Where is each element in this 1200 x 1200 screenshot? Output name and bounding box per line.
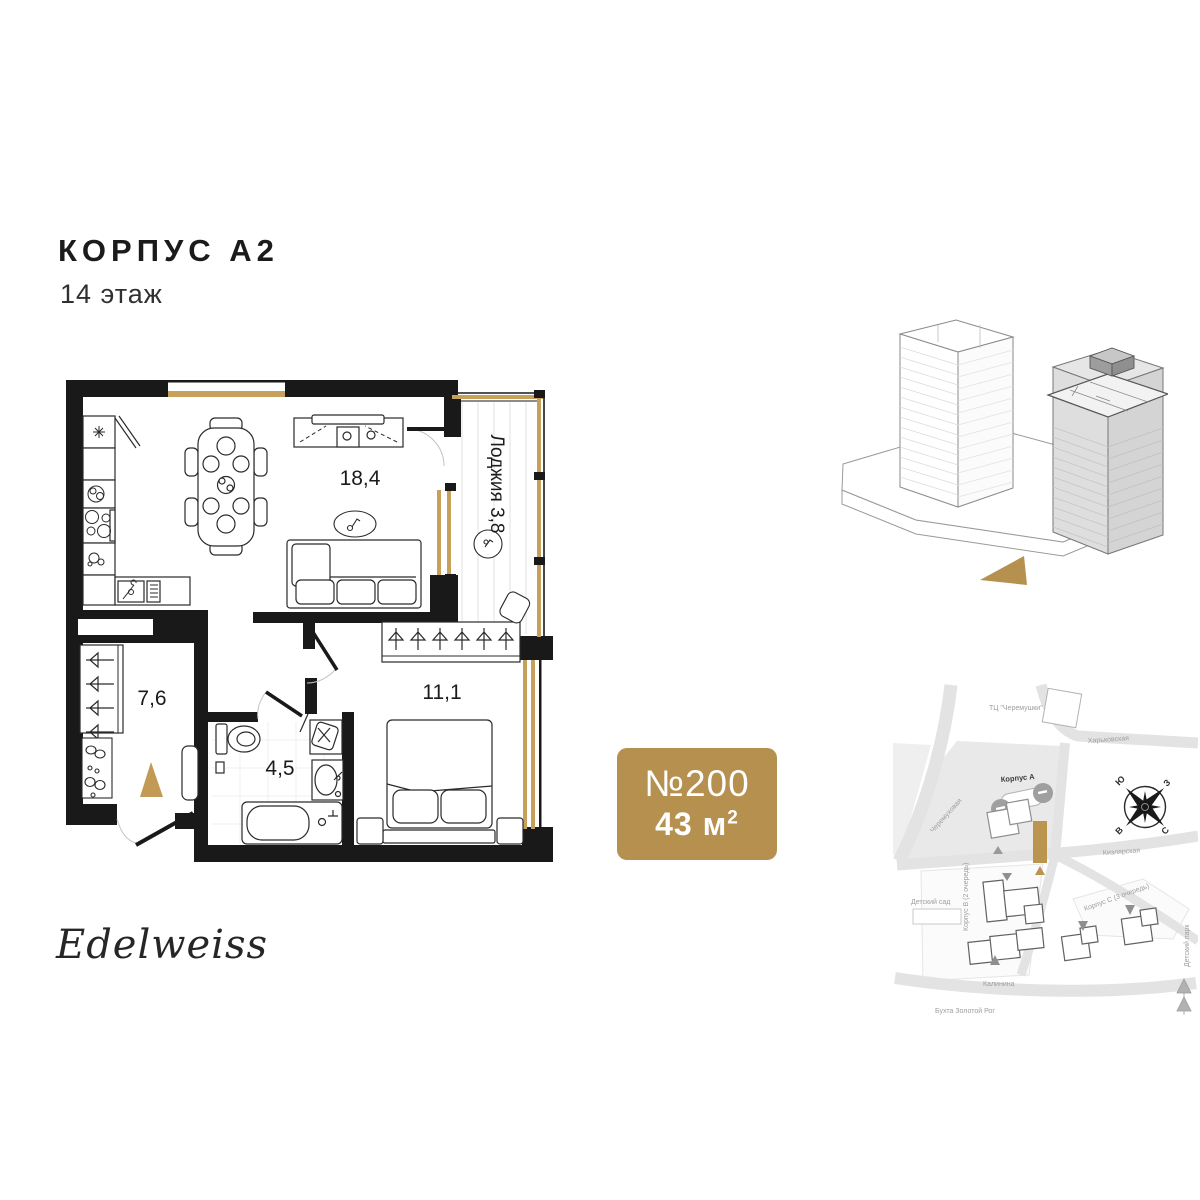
location-map: ТЦ "Черемушки" Харьковская Черемуховая К… xyxy=(893,683,1198,1040)
hallway-wardrobe xyxy=(80,645,123,739)
kindergarten-building xyxy=(913,909,961,924)
kindergarten-label: Детский сад xyxy=(911,898,950,906)
mall-label: ТЦ "Черемушки" xyxy=(989,705,1043,712)
floor-plan: 18,4 7,6 4,5 11,1 Лоджия 3,8 xyxy=(60,372,570,872)
road-kalinina xyxy=(895,978,1196,991)
loggia-table-icon xyxy=(474,530,502,558)
building-pointer-arrow xyxy=(980,556,1027,585)
korpus-b-label: Корпус В (2 очередь) xyxy=(963,863,970,931)
compass-rose: Ю З В С xyxy=(1113,774,1172,837)
compass-north: С xyxy=(1159,824,1171,836)
loggia-furniture xyxy=(474,530,532,625)
tv-unit xyxy=(294,415,403,447)
loggia-chair-icon xyxy=(498,590,532,625)
tower-left xyxy=(900,320,1013,507)
room-label-bedroom: 11,1 xyxy=(422,681,461,704)
street-label-kalinina: Калинина xyxy=(983,981,1015,988)
floor-subtitle: 14 этаж xyxy=(60,279,279,310)
apartment-badge: №200 43 м2 xyxy=(617,748,777,860)
mall-building xyxy=(1042,688,1081,727)
bathroom-sink-icon xyxy=(312,760,343,800)
apartment-area: 43 м2 xyxy=(655,806,739,843)
bay-label: Бухта Золотой Рог xyxy=(935,1007,995,1015)
room-label-hallway: 7,6 xyxy=(137,687,166,710)
toilet-icon xyxy=(216,724,260,773)
room-label-bathroom: 4,5 xyxy=(265,757,294,780)
header: КОРПУС А2 14 этаж xyxy=(58,233,279,310)
room-label-kitchen-living: 18,4 xyxy=(340,467,381,490)
nightstand-right xyxy=(497,818,523,844)
apartment-number: №200 xyxy=(644,765,749,804)
washing-machine-icon xyxy=(300,714,342,754)
tower-right xyxy=(1048,348,1168,554)
highlighted-building xyxy=(1033,821,1047,863)
compass-south: Ю xyxy=(1113,774,1127,788)
room-label-loggia: Лоджия 3,8 xyxy=(486,434,507,533)
park-label: Детский парк xyxy=(1183,924,1191,967)
door-pocket xyxy=(182,746,198,800)
bathtub-icon xyxy=(242,802,342,844)
dining-table xyxy=(185,418,267,555)
page-title: КОРПУС А2 xyxy=(58,233,279,269)
page: { "header": { "title": "КОРПУС А2", "sub… xyxy=(0,0,1200,1200)
bedroom-wardrobe xyxy=(382,622,520,662)
compass-west: З xyxy=(1161,777,1172,788)
kitchen-cabinets xyxy=(83,416,190,605)
building-3d xyxy=(828,292,1168,612)
developer-logo: Edelweiss xyxy=(56,922,268,968)
nightstand-left xyxy=(357,818,383,844)
street-label-kizlyarskaya: Кизлярская xyxy=(1103,847,1141,857)
shoe-cabinet xyxy=(82,738,112,798)
entrance-arrow xyxy=(140,762,163,797)
bed xyxy=(357,720,523,844)
sofa xyxy=(287,540,421,608)
ceiling-lamp-icon xyxy=(334,511,376,537)
compass-east: В xyxy=(1113,824,1125,836)
